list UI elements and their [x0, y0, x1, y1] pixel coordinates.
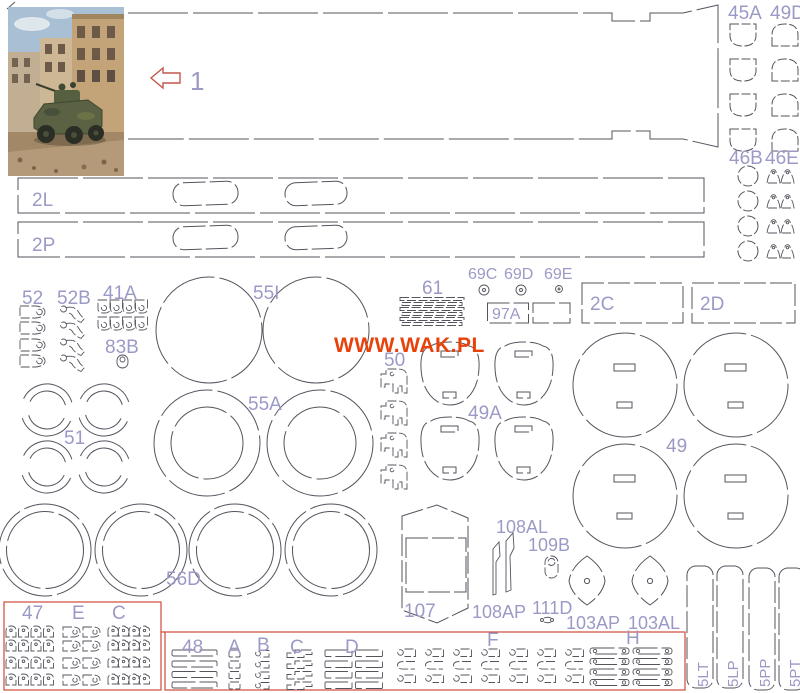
part-69D-shape [516, 285, 526, 295]
parts-sheet: 1 2L 2P 52 52B 41A 83B 55I 61 69C 69D 69… [0, 0, 800, 693]
part-41A-shapes [98, 300, 148, 330]
label-107: 107 [404, 601, 436, 622]
label-69d: 69D [504, 266, 533, 283]
part-109B-shape [545, 556, 558, 578]
part-H-bars [590, 648, 672, 686]
label-46e: 46E [765, 148, 799, 169]
label-h: H [626, 628, 640, 649]
label-48: 48 [182, 637, 203, 658]
label-1: 1 [190, 66, 204, 96]
part-E-grid [63, 627, 100, 685]
label-47: 47 [22, 603, 43, 624]
part-B-clips [256, 651, 269, 690]
label-97a: 97A [492, 306, 521, 323]
label-2p: 2P [32, 235, 55, 256]
label-2d: 2D [700, 294, 724, 315]
part-52-shapes [20, 306, 45, 367]
label-c-strip: C [290, 637, 304, 658]
part-108-shapes [493, 533, 514, 595]
label-69e: 69E [544, 266, 572, 283]
label-c-box: C [112, 603, 126, 624]
label-49: 49 [666, 436, 687, 457]
label-2l: 2L [32, 190, 53, 211]
label-56d: 56D [166, 569, 201, 590]
label-45a: 45A [728, 3, 762, 24]
part-97A-neighbor-outline [533, 303, 570, 323]
part-F-clips [398, 649, 584, 683]
part-45A-shapes [730, 24, 756, 151]
label-f: F [487, 630, 499, 651]
label-5pt: 5PT [787, 659, 800, 687]
label-55i: 55I [253, 283, 279, 304]
laser-box-2 [165, 632, 685, 690]
label-49d: 49D [770, 3, 800, 24]
part-46E-shapes [767, 170, 794, 258]
label-108al: 108AL [496, 517, 548, 537]
part-2L-outline [18, 178, 704, 213]
watermark: WWW.WAK.PL [334, 334, 485, 357]
label-83b: 83B [105, 337, 139, 358]
part-52B-shapes [61, 306, 85, 372]
box-art-photo [8, 7, 124, 176]
label-a: A [228, 637, 241, 658]
label-e: E [72, 603, 85, 624]
label-69c: 69C [468, 266, 497, 283]
part-46B-shapes [738, 166, 758, 261]
label-5lp: 5LP [725, 660, 742, 687]
label-52: 52 [22, 288, 43, 309]
label-61: 61 [422, 278, 443, 299]
part-69E-shape [556, 286, 563, 293]
part-50-shapes [381, 369, 407, 489]
part-47-grid [6, 626, 54, 685]
part-61-shapes [400, 298, 464, 326]
part-103-shapes [569, 556, 668, 605]
label-108ap: 108AP [472, 602, 526, 622]
arrow-left-icon [151, 68, 180, 88]
label-51: 51 [64, 428, 85, 449]
label-49a: 49A [468, 403, 502, 424]
label-d: D [345, 637, 359, 658]
label-5lt: 5LT [695, 662, 712, 687]
label-55a: 55A [248, 394, 282, 415]
label-103ap: 103AP [566, 613, 620, 633]
label-52b: 52B [57, 288, 91, 309]
part-2P-outline [18, 222, 704, 257]
label-109b: 109B [528, 535, 570, 555]
label-5pp: 5PP [757, 659, 774, 687]
label-41a: 41A [103, 283, 137, 304]
part-49D-shapes [772, 24, 798, 151]
part-C-grid [108, 626, 150, 684]
label-2c: 2C [590, 294, 614, 315]
label-46b: 46B [729, 148, 763, 169]
label-b: B [257, 635, 270, 656]
part-111D-shape [541, 617, 554, 623]
part-69C-shape [479, 285, 489, 295]
